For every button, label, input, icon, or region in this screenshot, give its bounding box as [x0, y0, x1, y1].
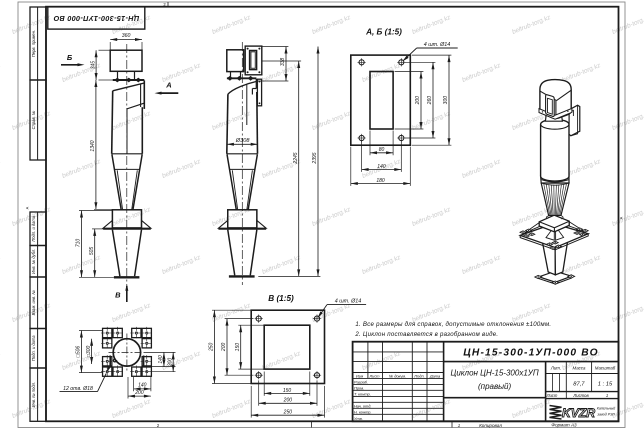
svg-text:80: 80	[379, 147, 385, 153]
svg-text:1: 1	[606, 393, 608, 398]
svg-text:Пров.: Пров.	[354, 385, 364, 390]
svg-text:300: 300	[443, 96, 449, 105]
svg-text:260: 260	[427, 96, 433, 106]
svg-text:180: 180	[376, 178, 385, 184]
svg-text:150: 150	[283, 388, 292, 394]
svg-text:505: 505	[89, 247, 95, 256]
svg-text:200: 200	[134, 390, 144, 396]
svg-text:Лист: Лист	[368, 373, 380, 378]
svg-text:Формат А3: Формат А3	[551, 422, 577, 427]
svg-text:Циклон ЦН-15-300х1УП: Циклон ЦН-15-300х1УП	[451, 369, 539, 378]
svg-text:200: 200	[283, 398, 293, 404]
svg-text:140: 140	[158, 355, 164, 364]
svg-text:Изм: Изм	[356, 373, 364, 378]
svg-text:Ø308: Ø308	[235, 138, 251, 144]
svg-text:Утв.: Утв.	[354, 416, 363, 421]
svg-text:4 шт. Ø14: 4 шт. Ø14	[424, 42, 451, 48]
svg-text:Копировал: Копировал	[479, 423, 502, 428]
svg-text:150: 150	[235, 343, 241, 352]
svg-text:140: 140	[138, 383, 147, 389]
svg-text:Подп. и дата: Подп. и дата	[31, 335, 36, 361]
svg-text:12 отв. Ø18: 12 отв. Ø18	[63, 386, 93, 392]
svg-text:Перв. примен.: Перв. примен.	[31, 30, 36, 57]
svg-text:А: А	[165, 80, 171, 89]
svg-text:□506: □506	[76, 346, 82, 358]
svg-text:№ докум.: № докум.	[389, 373, 406, 378]
svg-text:Листов: Листов	[572, 393, 589, 398]
svg-text:Разраб.: Разраб.	[354, 380, 368, 385]
svg-text:1. Все размеры для справок: 1. Все размеры для справок, допустимые о…	[355, 321, 551, 328]
svg-text:345: 345	[90, 61, 96, 70]
svg-text:Лит.: Лит.	[550, 366, 561, 371]
svg-text:710: 710	[76, 239, 82, 248]
svg-text:250: 250	[209, 342, 215, 352]
svg-text:Инв. № подл.: Инв. № подл.	[31, 382, 36, 407]
svg-text:□300: □300	[86, 346, 92, 358]
svg-text:2. Циклон поставляется в р: 2. Циклон поставляется в разобранном вид…	[354, 331, 498, 338]
svg-text:Т. контр.: Т. контр.	[354, 391, 371, 396]
svg-text:Инв. № дубл.: Инв. № дубл.	[31, 249, 36, 274]
svg-text:Лист: Лист	[546, 393, 558, 398]
svg-text:200: 200	[168, 358, 174, 368]
svg-text:4 шт. Ø14: 4 шт. Ø14	[335, 299, 362, 305]
svg-text:(правый): (правый)	[478, 382, 511, 391]
svg-text:Капельный: Капельный	[597, 407, 615, 411]
svg-text:Взам. инв. №: Взам. инв. №	[31, 290, 36, 316]
svg-text:завод РЗЛ: завод РЗЛ	[596, 413, 615, 417]
svg-text:Дата: Дата	[429, 373, 441, 378]
svg-text:140: 140	[377, 164, 386, 170]
svg-text:Нач. отд.: Нач. отд.	[354, 403, 371, 408]
svg-text:ЦН-15-300-1УП-000 ВО: ЦН-15-300-1УП-000 ВО	[53, 14, 139, 23]
svg-text:Н. контр.: Н. контр.	[354, 409, 372, 414]
svg-text:Справ. №: Справ. №	[31, 110, 36, 129]
svg-text:Масса: Масса	[573, 366, 587, 371]
svg-text:2395: 2395	[312, 152, 318, 164]
svg-text:А, Б (1:5): А, Б (1:5)	[365, 28, 402, 37]
svg-text:200: 200	[415, 96, 421, 106]
svg-text:KVZR: KVZR	[562, 406, 595, 420]
svg-text:А: А	[619, 216, 624, 219]
svg-text:ЦН-15-300-1УП-000 ВО: ЦН-15-300-1УП-000 ВО	[463, 348, 598, 359]
svg-text:1 : 15: 1 : 15	[598, 381, 613, 387]
svg-text:А: А	[25, 206, 30, 209]
svg-text:360: 360	[122, 33, 131, 39]
svg-text:В (1:5): В (1:5)	[268, 294, 294, 303]
svg-text:Подп. и дата: Подп. и дата	[31, 215, 36, 241]
svg-text:Б: Б	[67, 53, 73, 62]
svg-text:Подп.: Подп.	[414, 373, 424, 378]
svg-text:338: 338	[280, 58, 286, 67]
svg-text:Масштаб: Масштаб	[595, 366, 616, 371]
svg-text:В: В	[115, 291, 121, 300]
svg-text:200: 200	[221, 343, 227, 353]
svg-text:1340: 1340	[90, 140, 96, 151]
svg-text:2245: 2245	[293, 152, 299, 164]
svg-text:250: 250	[283, 410, 293, 416]
svg-text:87,7: 87,7	[573, 381, 585, 387]
